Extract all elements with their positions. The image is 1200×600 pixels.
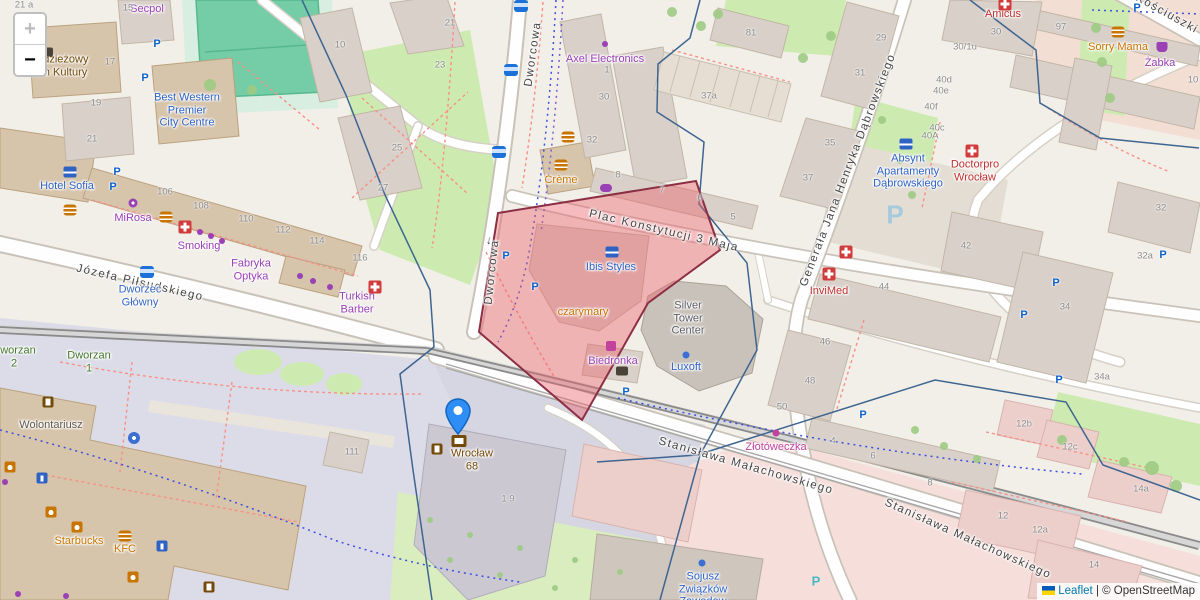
basemap-tiles xyxy=(0,0,1200,600)
leaflet-link[interactable]: Leaflet xyxy=(1058,585,1093,597)
zoom-in-button[interactable]: + xyxy=(15,14,45,44)
zoom-out-button[interactable]: − xyxy=(15,45,45,75)
attribution-separator: | xyxy=(1093,585,1102,597)
silver-tower-building xyxy=(641,281,763,391)
zoom-control: + − xyxy=(13,12,47,77)
attribution-bar: Leaflet | © OpenStreetMap xyxy=(1037,583,1200,600)
map-canvas[interactable]: DworcowaDworcowa←Plac Konstytucji 3 Maja… xyxy=(0,0,1200,600)
ukraine-flag-icon xyxy=(1042,586,1055,595)
map-marker[interactable] xyxy=(444,398,472,436)
osm-attribution[interactable]: © OpenStreetMap xyxy=(1102,585,1195,597)
